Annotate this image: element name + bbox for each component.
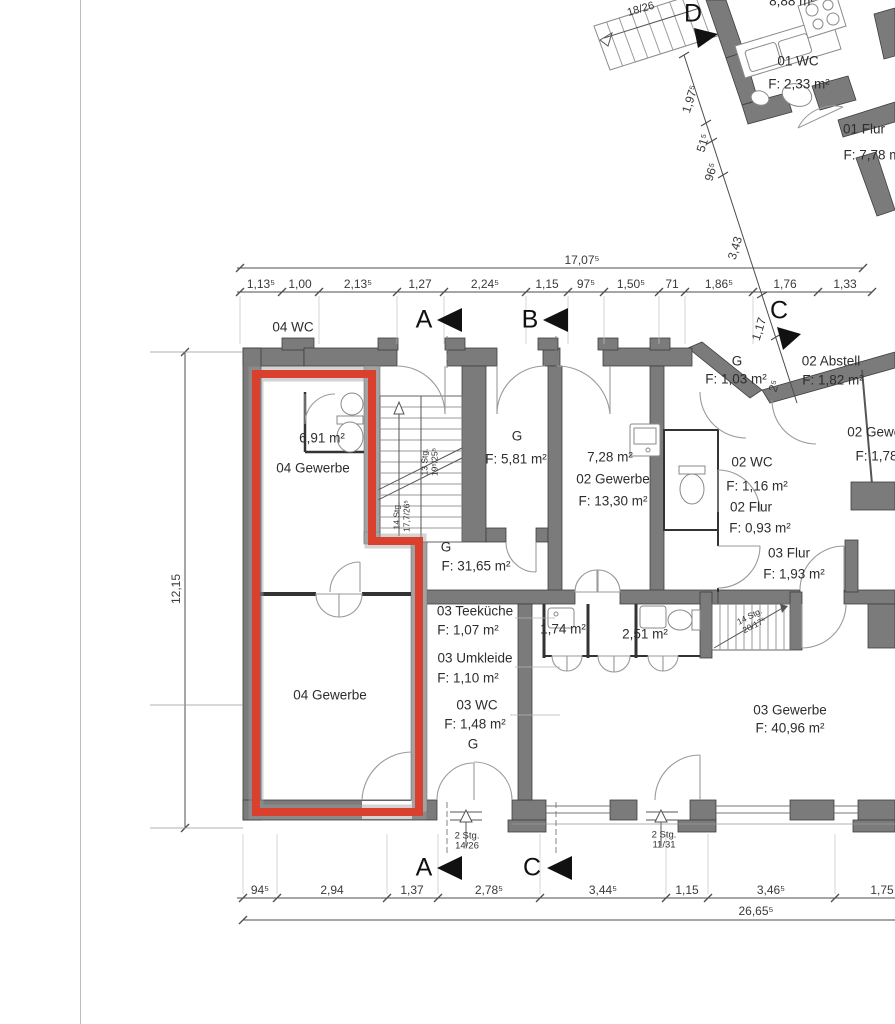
- dim-top-total: 17,07⁵: [564, 253, 599, 267]
- stair-ratio: 19⁵/25⁵: [429, 448, 439, 476]
- room-area-03-gewerbe: F: 40,96 m²: [755, 721, 824, 736]
- room-label-01-flur: 01 Flur: [843, 122, 885, 137]
- stair-ratio: 14/26: [455, 840, 479, 851]
- room-label-02-gewerbe: 02 Gewerbe: [576, 472, 650, 487]
- dim-bottom-seg: 1,75: [870, 883, 893, 897]
- room-label-03-flur: 03 Flur: [768, 546, 810, 561]
- room-label-02-abstell: 02 Abstell: [802, 354, 861, 369]
- dim-top-seg: 1,27: [408, 277, 431, 291]
- dim-top-seg: 2,24⁵: [471, 277, 499, 291]
- dim-top-seg: 1,86⁵: [705, 277, 733, 291]
- room-area-01-flur: F: 7,78 m: [843, 148, 895, 163]
- room-label-02-wc: 02 WC: [731, 455, 772, 470]
- toilet-icon: [668, 610, 692, 630]
- section-letter-a-top: A: [416, 306, 433, 335]
- section-letter-c: C: [770, 297, 788, 326]
- floorplan-sheet: 8,88 m² 01 WC F: 2,33 m² 01 Flur F: 7,78…: [0, 0, 895, 1024]
- room-area-03-wc: F: 1,48 m²: [444, 717, 506, 732]
- dim-bottom-seg: 1,37: [400, 883, 423, 897]
- dim-bottom-seg: 2,94: [320, 883, 343, 897]
- dim-top-seg: 1,15: [535, 277, 558, 291]
- section-arrow-b-bottom: [547, 856, 572, 880]
- section-arrow-b-top: [543, 308, 568, 332]
- room-label-g-hall: G: [441, 540, 452, 555]
- room-label-01-wc: 01 WC: [777, 54, 818, 69]
- room-area-g-stair: F: 5,81 m²: [485, 452, 547, 467]
- room-label-04-wc: 04 WC: [272, 320, 313, 335]
- stair-count: 13 Stg.: [420, 449, 430, 476]
- stair-label-main-down: 14 Stg.17,7/26⁵: [393, 500, 412, 532]
- stair-ratio: 17,7/26⁵: [401, 500, 411, 532]
- stair-count: 14 Stg.: [392, 503, 402, 530]
- room-area-02-wc: F: 1,16 m²: [726, 479, 788, 494]
- section-letter-d: D: [684, 0, 702, 29]
- dim-bottom-seg: 3,44⁵: [589, 883, 617, 897]
- room-area-04-wc: 6,91 m²: [299, 431, 345, 446]
- section-arrow-c: [777, 327, 801, 350]
- toilet-tank-icon: [692, 610, 700, 630]
- room-area-03-flur: F: 1,93 m²: [763, 567, 825, 582]
- section-letter-b-bottom: C: [523, 854, 541, 883]
- dim-bottom-total: 26,65⁵: [738, 904, 773, 918]
- room-area-03-teekueche: F: 1,07 m²: [437, 623, 499, 638]
- room-label-02-flur: 02 Flur: [730, 500, 772, 515]
- dim-top-seg: 1,33: [833, 277, 856, 291]
- room-label-03-umkleide: 03 Umkleide: [437, 651, 512, 666]
- room-label-g-stair: G: [512, 429, 523, 444]
- dim-top-seg: 1,76: [773, 277, 796, 291]
- dim-bottom-seg: 1,15: [675, 883, 698, 897]
- dim-top-seg: 1,00: [288, 277, 311, 291]
- room-area-02-gewerbe-small: 7,28 m²: [587, 450, 633, 465]
- dim-top-seg: 71: [665, 277, 678, 291]
- stair-label-entry2: 2 Stg.11/31: [652, 831, 677, 850]
- walls-main: [243, 338, 895, 832]
- dim-top-seg: 2,13⁵: [344, 277, 372, 291]
- room-label-04-gewerbe-upper: 04 Gewerbe: [276, 461, 350, 476]
- room-label-03-wc: 03 WC: [456, 698, 497, 713]
- room-area-01-wc: F: 2,33 m²: [768, 77, 830, 92]
- dim-left-height: 12,15: [169, 574, 183, 604]
- sink-icon: [341, 393, 363, 415]
- room-area-small-1: 1,74 m²: [540, 622, 586, 637]
- room-area-02-gewerbe: F: 13,30 m²: [578, 494, 647, 509]
- stair-ratio: 11/31: [652, 839, 675, 850]
- dim-bottom-seg: 2,78⁵: [475, 883, 503, 897]
- dim-bottom-seg: 94⁵: [251, 883, 269, 897]
- room-label-04-gewerbe-lower: 04 Gewerbe: [293, 688, 367, 703]
- section-letter-b-top: B: [522, 306, 539, 335]
- dim-top-seg: 1,13⁵: [247, 277, 275, 291]
- room-area-g-hall: F: 31,65 m²: [441, 559, 510, 574]
- room-area-02-abstell: F: 1,82 m²: [802, 373, 864, 388]
- section-letter-a-bottom: A: [416, 854, 433, 883]
- stair-label-main-up: 13 Stg.19⁵/25⁵: [421, 448, 440, 476]
- room-label-g-hall2: G: [468, 737, 479, 752]
- room-area-03-umkleide: F: 1,10 m²: [437, 671, 499, 686]
- dim-bottom-seg: 3,46⁵: [757, 883, 785, 897]
- toilet-icon: [680, 474, 704, 504]
- room-label-02-gewerbe-right: 02 Gewerbe: [847, 425, 895, 440]
- room-label-partial-top: 8,88 m²: [769, 0, 815, 9]
- sink-icon: [640, 606, 666, 628]
- section-arrow-a-bottom: [437, 856, 462, 880]
- room-label-03-teekueche: 03 Teeküche: [437, 604, 513, 619]
- toilet-tank-icon: [679, 466, 705, 474]
- room-area-02-flur: F: 0,93 m²: [729, 521, 791, 536]
- dim-top-seg: 1,50⁵: [617, 277, 645, 291]
- room-label-03-gewerbe: 03 Gewerbe: [753, 703, 827, 718]
- room-label-g-mid: G: [732, 354, 743, 369]
- room-area-02-gewerbe-right: F: 1,78 m: [855, 449, 895, 464]
- stair-label-entry1: 2 Stg.14/26: [455, 832, 480, 851]
- room-area-small-2: 2,51 m²: [622, 627, 668, 642]
- room-area-g-mid: F: 1,03 m²: [705, 372, 767, 387]
- dim-top-seg: 97⁵: [577, 277, 595, 291]
- section-arrow-a-top: [437, 308, 462, 332]
